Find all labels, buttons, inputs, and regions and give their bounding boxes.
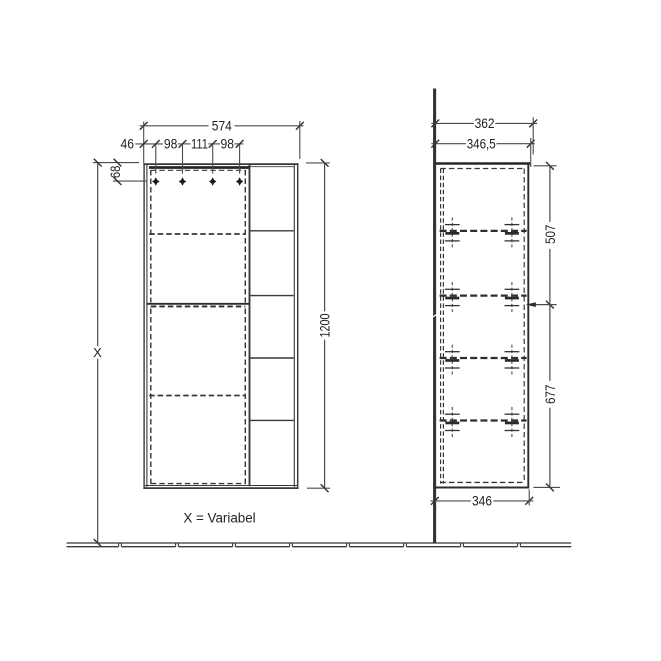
svg-text:346: 346 xyxy=(472,493,492,509)
svg-text:X = Variabel: X = Variabel xyxy=(183,511,255,526)
svg-text:98: 98 xyxy=(221,136,235,152)
svg-text:1200: 1200 xyxy=(317,314,332,338)
svg-text:111: 111 xyxy=(191,136,208,152)
svg-text:68: 68 xyxy=(108,166,123,179)
svg-text:677: 677 xyxy=(543,385,558,405)
svg-text:346,5: 346,5 xyxy=(467,136,496,152)
svg-text:362: 362 xyxy=(475,115,495,131)
svg-text:X: X xyxy=(93,345,102,360)
svg-text:574: 574 xyxy=(212,118,232,134)
svg-text:507: 507 xyxy=(543,225,558,245)
svg-text:46: 46 xyxy=(121,136,135,152)
svg-text:98: 98 xyxy=(164,136,178,152)
